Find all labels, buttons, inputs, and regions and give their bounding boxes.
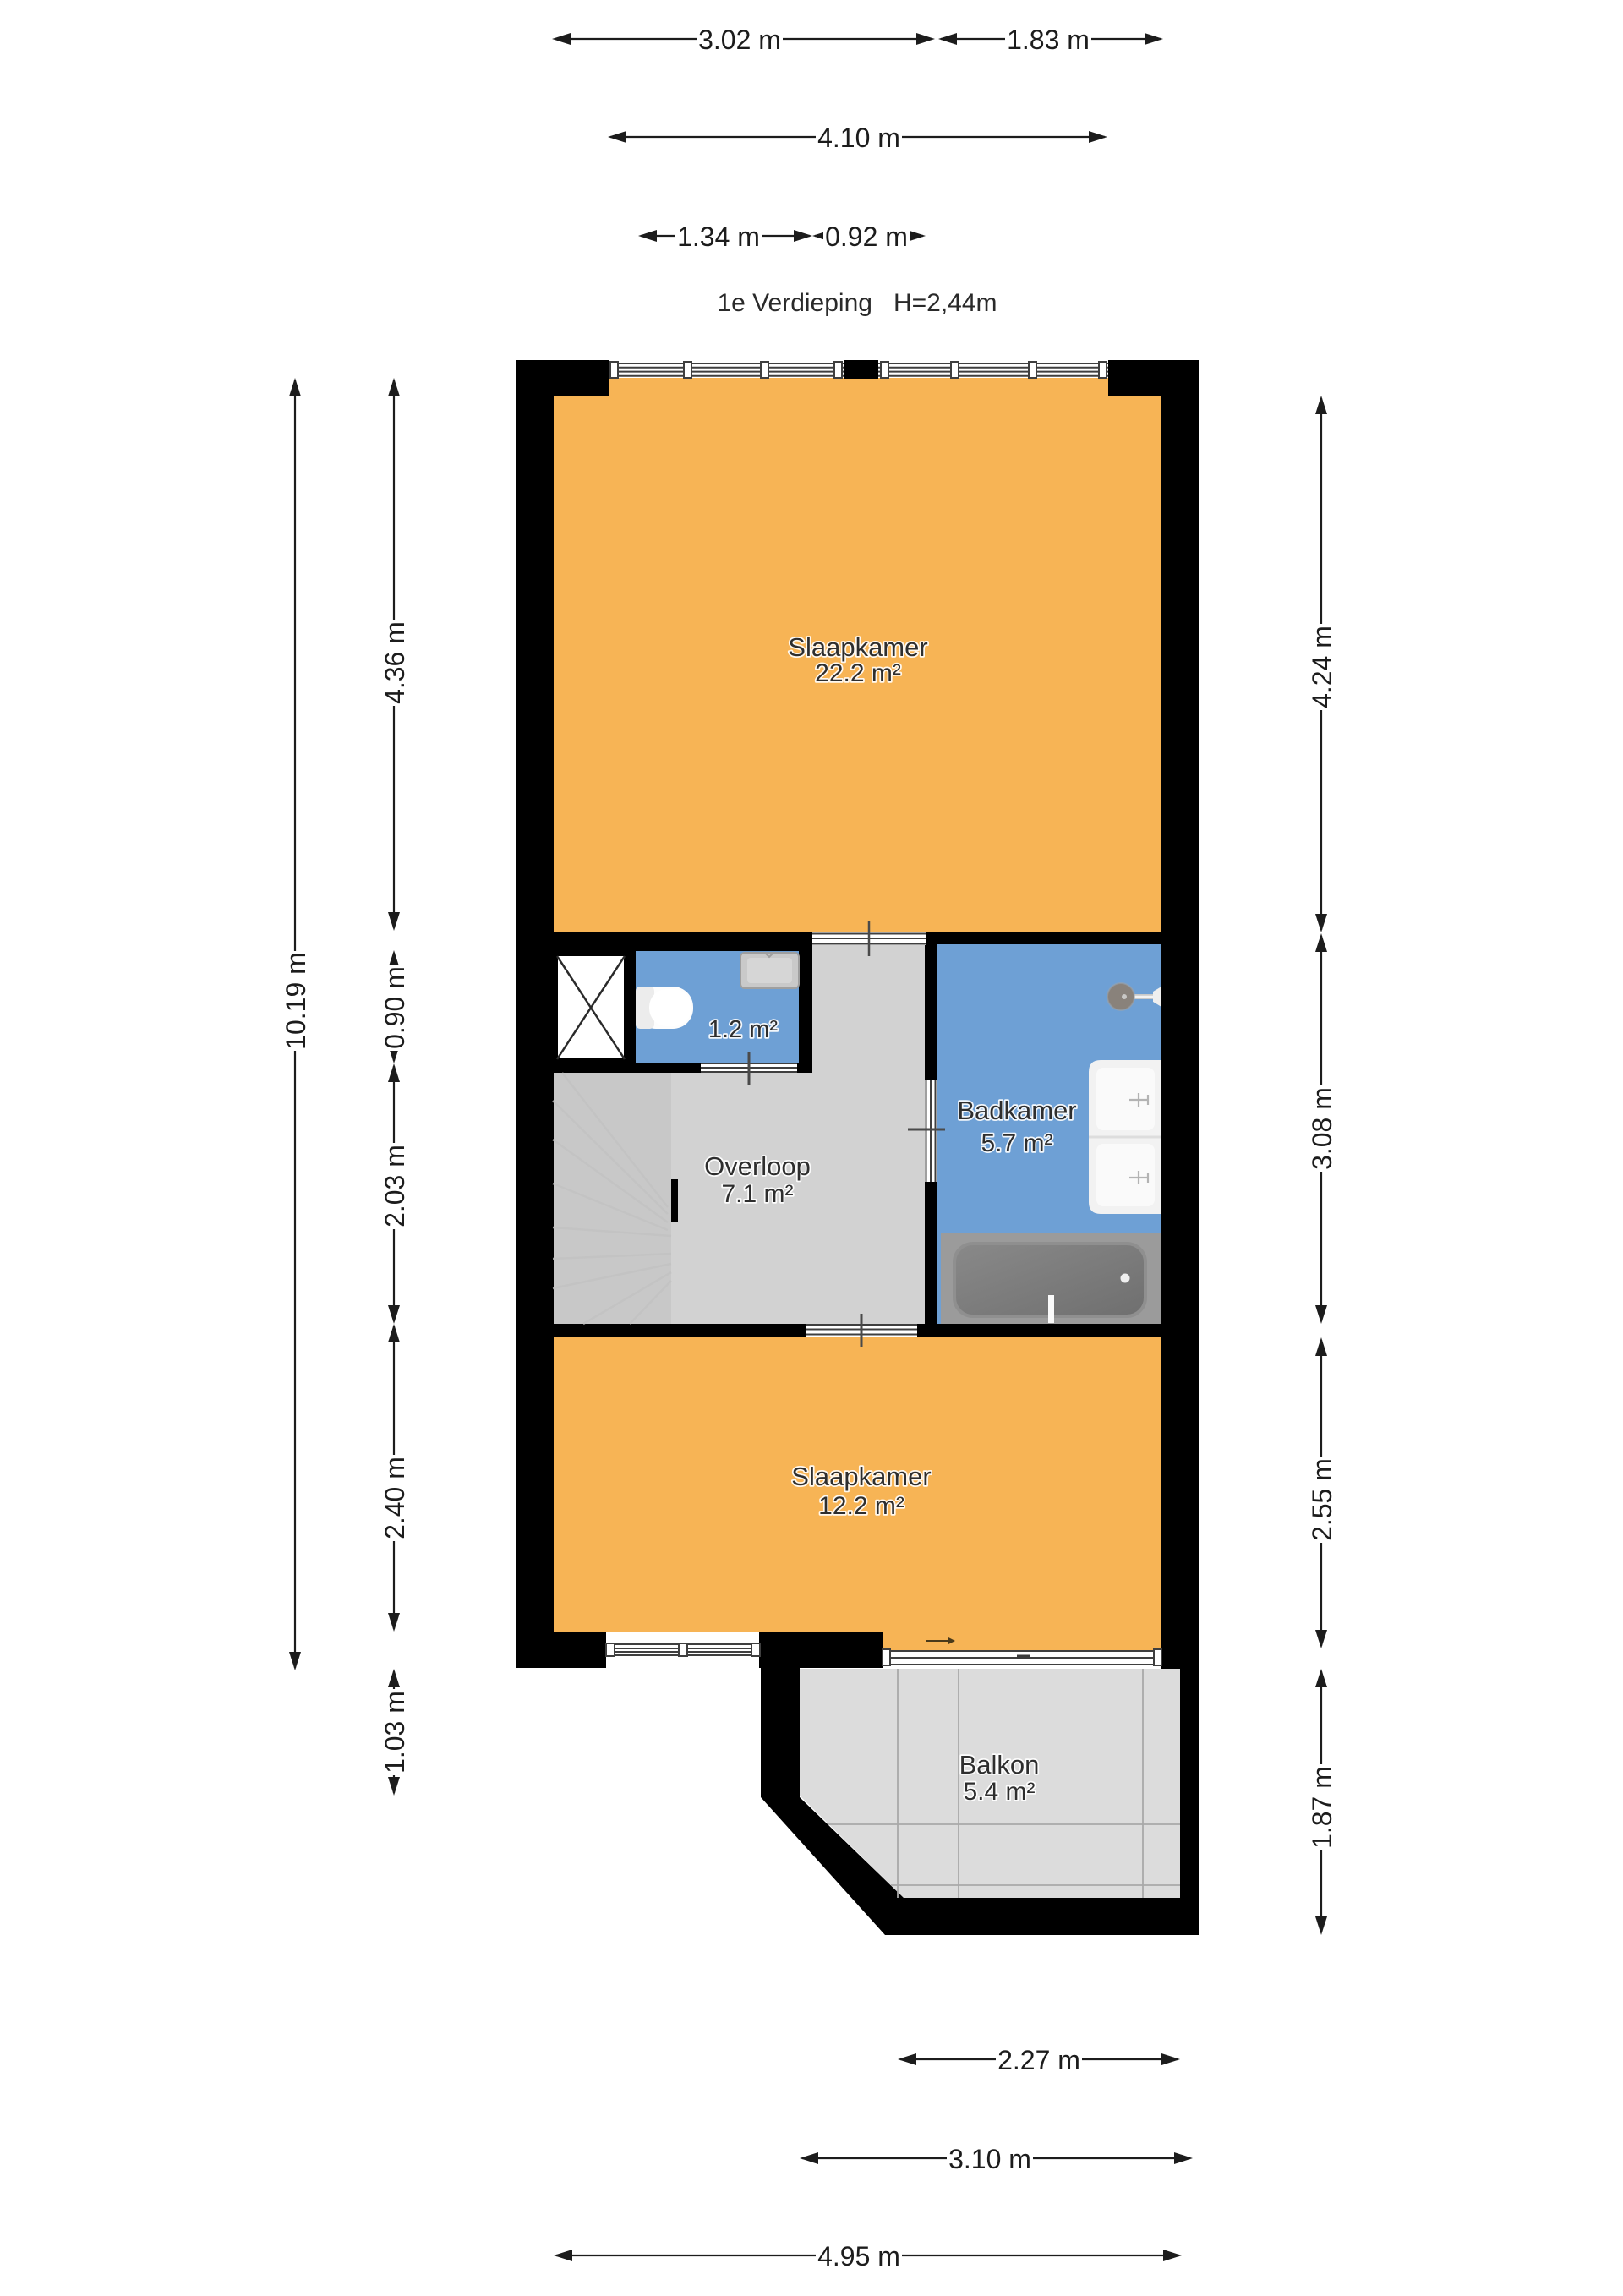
svg-text:7.1 m²: 7.1 m² (721, 1180, 793, 1208)
svg-text:10.19 m: 10.19 m (281, 952, 311, 1050)
svg-text:4.24 m: 4.24 m (1307, 626, 1337, 708)
svg-text:Slaapkamer: Slaapkamer (791, 1462, 931, 1491)
svg-text:1.83 m: 1.83 m (1007, 25, 1090, 55)
svg-text:1.2 m²: 1.2 m² (708, 1016, 779, 1043)
svg-text:1.34 m: 1.34 m (677, 221, 760, 252)
svg-text:5.4 m²: 5.4 m² (963, 1778, 1035, 1806)
svg-text:3.10 m: 3.10 m (948, 2144, 1031, 2174)
svg-text:0.92 m: 0.92 m (825, 221, 908, 252)
svg-text:12.2 m²: 12.2 m² (818, 1492, 904, 1520)
svg-text:3.08 m: 3.08 m (1307, 1087, 1337, 1170)
svg-text:3.02 m: 3.02 m (698, 25, 781, 55)
svg-text:Badkamer: Badkamer (957, 1096, 1076, 1125)
svg-text:5.7 m²: 5.7 m² (981, 1129, 1052, 1157)
svg-text:4.36 m: 4.36 m (380, 621, 410, 704)
svg-text:2.55 m: 2.55 m (1307, 1458, 1337, 1541)
svg-text:1.87 m: 1.87 m (1307, 1766, 1337, 1849)
svg-text:22.2 m²: 22.2 m² (815, 659, 901, 687)
svg-text:4.95 m: 4.95 m (817, 2241, 900, 2271)
svg-text:4.10 m: 4.10 m (817, 123, 900, 153)
svg-text:2.03 m: 2.03 m (380, 1145, 410, 1227)
svg-text:2.40 m: 2.40 m (380, 1457, 410, 1539)
svg-text:1e Verdieping H=2,44m: 1e Verdieping H=2,44m (717, 289, 997, 317)
svg-text:1.03 m: 1.03 m (380, 1691, 410, 1774)
svg-text:0.90 m: 0.90 m (380, 966, 410, 1049)
svg-text:Slaapkamer: Slaapkamer (788, 632, 927, 662)
svg-text:Overloop: Overloop (704, 1151, 811, 1181)
svg-text:Balkon: Balkon (959, 1750, 1040, 1779)
svg-text:2.27 m: 2.27 m (997, 2045, 1080, 2075)
